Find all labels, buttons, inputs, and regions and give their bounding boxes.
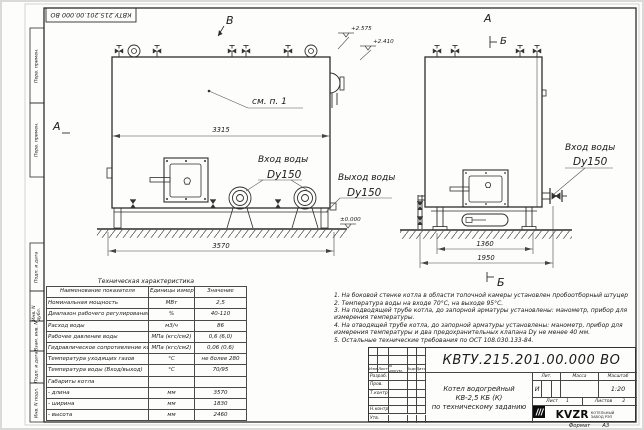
- section-marker-b-top: Б: [500, 36, 507, 47]
- margin-label-podp-data-1: Подп. и дата: [30, 243, 44, 291]
- rev-col-izm: Изм: [369, 365, 378, 373]
- tech-header-value: Значение: [195, 287, 247, 298]
- callout-see-item-1: см. п. 1: [252, 97, 287, 107]
- sheets-label: Листов: [595, 399, 613, 404]
- table-row: Номинальная мощностьМВт2,5: [47, 298, 247, 309]
- drawing-sheet: В А см. п. 1 3315 3570 +2.575 +2.410 ±0.…: [0, 0, 644, 430]
- sheets-cell: Листов 2: [583, 398, 637, 406]
- scale-header: Масштаб: [599, 373, 637, 381]
- rev-col-sign: Подп.: [408, 365, 417, 373]
- rev-col-date: Дата: [417, 365, 426, 373]
- company-name: КОТЕЛЬНЫЙ ЗАВОД РЭП: [591, 411, 615, 419]
- rev-col-list: Лист: [378, 365, 389, 373]
- note-5: 5. Остальные технические требования по О…: [334, 337, 630, 344]
- company-cell: KVZR КОТЕЛЬНЫЙ ЗАВОД РЭП: [533, 406, 637, 423]
- role-utv: Утв.: [369, 415, 389, 424]
- section-marker-a-side: А: [483, 12, 492, 25]
- table-row: Габариты котла: [47, 376, 247, 387]
- role-blank: [369, 398, 389, 406]
- role-razrab: Разраб.: [369, 373, 389, 381]
- table-row: Диапазон рабочего регулирования%40-110: [47, 309, 247, 320]
- format-label: Формат: [569, 423, 591, 429]
- scale-value: 1:20: [599, 381, 637, 398]
- mass-value: [561, 381, 599, 398]
- table-row: Расход водым3/ч86: [47, 320, 247, 331]
- rev-col-docnum: N докум.: [389, 365, 408, 373]
- front-inlet-label: Вход воды: [258, 155, 308, 165]
- table-row: Гидравлическое сопротивление котлаМПа (к…: [47, 342, 247, 353]
- tech-header-name: Наименование показателя: [47, 287, 149, 298]
- dim-1360: 1360: [476, 240, 493, 248]
- kvzr-logo-mark: [533, 406, 545, 418]
- dim-3315: 3315: [212, 126, 229, 134]
- section-marker-a-front: А: [52, 120, 61, 133]
- tech-characteristics: Техническая характеристика Наименование …: [46, 278, 247, 421]
- elev-2410: +2.410: [373, 39, 394, 45]
- table-row: Температура уходящих газов°Сне более 280: [47, 354, 247, 365]
- margin-label-perv-primen-1: Перв. примен.: [30, 28, 44, 103]
- role-prov: Пров.: [369, 381, 389, 389]
- section-marker-v: В: [226, 14, 234, 27]
- format-note: Формат А3: [544, 423, 634, 429]
- format-value: А3: [602, 423, 609, 429]
- margin-label-perv-primen-2: Перв. примен.: [30, 103, 44, 177]
- tech-table-title: Техническая характеристика: [46, 278, 246, 285]
- note-3: 3. На подводящей трубе котла, до запорно…: [334, 307, 630, 321]
- margin-label-inv-podl: Инв. N подл.: [30, 383, 44, 422]
- ground-hatch-front: [97, 230, 347, 238]
- note-4: 4. На отводящей трубе котла, до запорной…: [334, 322, 630, 336]
- elev-zero: ±0.000: [340, 217, 361, 223]
- side-inlet-size: Dy150: [573, 156, 608, 168]
- front-outlet-label: Выход воды: [338, 173, 395, 183]
- sheets-value: 2: [622, 399, 625, 404]
- note-1: 1. На боковой стенке котла в области топ…: [334, 292, 630, 299]
- ground-hatch-side: [400, 231, 572, 239]
- margin-label-vzam-inv: Взам. инв. N: [30, 321, 44, 351]
- product-name: Котел водогрейный КВ-2,5 КБ (К) по техни…: [426, 373, 533, 423]
- product-name-line2: КВ-2,5 КБ (К): [456, 394, 503, 403]
- product-name-line1: Котел водогрейный: [443, 385, 514, 394]
- margin-label-podp-data-2: Подп. и дата: [30, 351, 44, 383]
- front-inlet-size: Dy150: [267, 169, 302, 181]
- table-row: - высотамм2460: [47, 410, 247, 421]
- lit-header: Лит.: [533, 373, 561, 381]
- product-name-line3: по техническому заданию: [432, 403, 527, 412]
- mass-header: Масса: [561, 373, 599, 381]
- table-row: Рабочее давление водыМПа (кгс/см2)0,6 (6…: [47, 331, 247, 342]
- table-row: Температура воды (Вход/выход)°С70/95: [47, 365, 247, 376]
- front-outlet-size: Dy150: [347, 187, 382, 199]
- sheet-value: 1: [566, 399, 569, 404]
- title-block: Изм Лист N докум. Подп. Дата Разраб. Про…: [368, 347, 636, 422]
- side-inlet-label: Вход воды: [565, 143, 615, 153]
- kvzr-logo-text: KVZR: [556, 409, 589, 421]
- doc-number: КВТУ.215.201.00.000 ВО: [426, 348, 637, 373]
- tech-table: Наименование показателя Единицы измерени…: [46, 286, 247, 421]
- dim-1950: 1950: [477, 254, 494, 262]
- technical-notes: 1. На боковой стенке котла в области топ…: [334, 292, 630, 345]
- sheet-cell: Лист 1: [533, 398, 583, 406]
- role-tkontr: Т.контр.: [369, 390, 389, 398]
- lit-value: И: [533, 381, 542, 398]
- tech-header-unit: Единицы измерения: [149, 287, 195, 298]
- top-stamp: КВТУ.215.201.00.000 ВО: [46, 8, 136, 22]
- margin-label-inv-dubl: Инв. N дубл.: [30, 291, 44, 321]
- elev-2575: +2.575: [351, 26, 372, 32]
- note-2: 2. Температура воды на входе 70°С, на вы…: [334, 300, 630, 307]
- kvzr-logo: KVZR КОТЕЛЬНЫЙ ЗАВОД РЭП: [556, 409, 615, 421]
- dim-3570: 3570: [212, 242, 229, 250]
- role-nkontr: Н.контр.: [369, 406, 389, 414]
- section-marker-b-bottom: Б: [497, 276, 505, 289]
- table-row: - ширинамм1830: [47, 398, 247, 409]
- table-row: - длинамм3570: [47, 387, 247, 398]
- sheet-label: Лист: [546, 399, 558, 404]
